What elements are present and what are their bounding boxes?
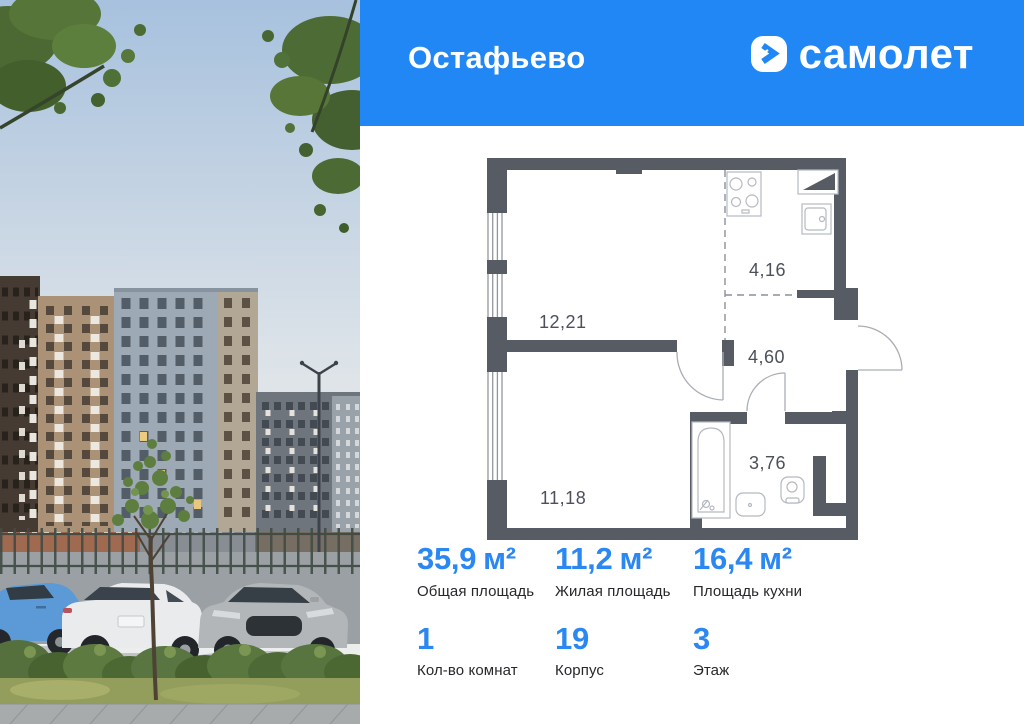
building-tan — [38, 296, 116, 532]
project-title: Остафьево — [408, 40, 585, 76]
foliage-top-left — [0, 0, 146, 128]
brand-logo: самолет — [751, 33, 974, 75]
stat-rooms-count-label: Кол-во комнат — [417, 662, 555, 679]
stat-floor-number-label: Этаж — [693, 662, 831, 679]
foliage-top-right — [262, 0, 360, 233]
sidewalk — [0, 704, 360, 724]
stat-living-area-label: Жилая площадь — [555, 583, 693, 600]
listing-card: Остафьево самолет — [0, 0, 1024, 724]
building-right — [256, 392, 360, 532]
stat-total-area-label: Общая площадь — [417, 583, 555, 600]
toilet-icon — [781, 477, 804, 503]
stat-floor-number-value: 3 — [693, 623, 831, 656]
photo-scene — [0, 0, 360, 724]
stat-rooms-count: 1 Кол-во комнат — [417, 623, 555, 680]
header-banner: Остафьево самолет — [360, 0, 1024, 126]
complex-photo — [0, 0, 360, 724]
kitchen-sink-icon — [802, 204, 831, 234]
building-left-dark — [0, 276, 40, 532]
washbasin-icon — [736, 493, 765, 516]
stat-total-area: 35,9м² Общая площадь — [417, 543, 555, 600]
stat-kitchen-area-label: Площадь кухни — [693, 583, 831, 600]
stat-rooms-count-value: 1 — [417, 623, 555, 656]
room-main-area-label: 12,21 — [539, 312, 587, 332]
stat-total-area-value: 35,9м² — [417, 543, 555, 576]
bathtub-icon — [692, 422, 730, 518]
samolet-logo-icon — [751, 36, 787, 72]
hallway-area-label: 4,60 — [748, 347, 785, 367]
stat-kitchen-area-value: 16,4м² — [693, 543, 831, 576]
floor-plan: 12,21 4,16 4,60 3,76 11,18 — [486, 156, 906, 541]
kitchen-area-label: 4,16 — [749, 260, 786, 280]
stat-building-number-value: 19 — [555, 623, 693, 656]
stat-building-number: 19 Корпус — [555, 623, 693, 680]
apartment-stats: 35,9м² Общая площадь 11,2м² Жилая площад… — [417, 543, 831, 702]
plan-doors — [677, 326, 902, 411]
room-area-labels: 12,21 4,16 4,60 3,76 11,18 — [539, 260, 786, 508]
brand-name: самолет — [799, 33, 974, 75]
stat-kitchen-area: 16,4м² Площадь кухни — [693, 543, 831, 600]
stat-living-area: 11,2м² Жилая площадь — [555, 543, 693, 600]
vent-shaft-icon — [798, 170, 838, 194]
stat-floor-number: 3 Этаж — [693, 623, 831, 680]
room-lower-area-label: 11,18 — [540, 488, 586, 508]
stat-building-number-label: Корпус — [555, 662, 693, 679]
stat-living-area-value: 11,2м² — [555, 543, 693, 576]
stove-icon — [727, 172, 761, 216]
bathroom-area-label: 3,76 — [749, 453, 786, 473]
